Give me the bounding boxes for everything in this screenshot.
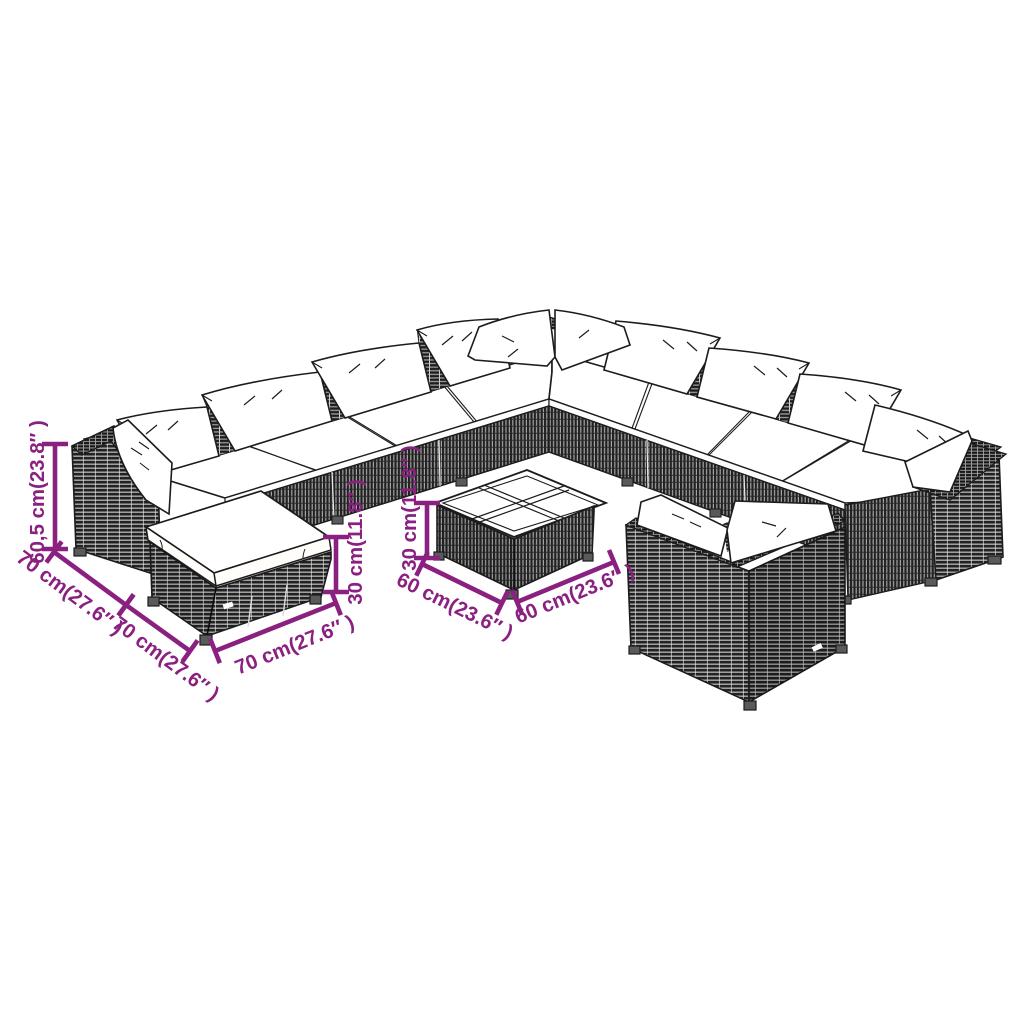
svg-text:30 cm(11.8″ ): 30 cm(11.8″ ) (345, 479, 367, 604)
svg-text:30 cm(11.8″ ): 30 cm(11.8″ ) (399, 445, 421, 570)
svg-text:60,5 cm(23.8″ ): 60,5 cm(23.8″ ) (27, 420, 49, 564)
